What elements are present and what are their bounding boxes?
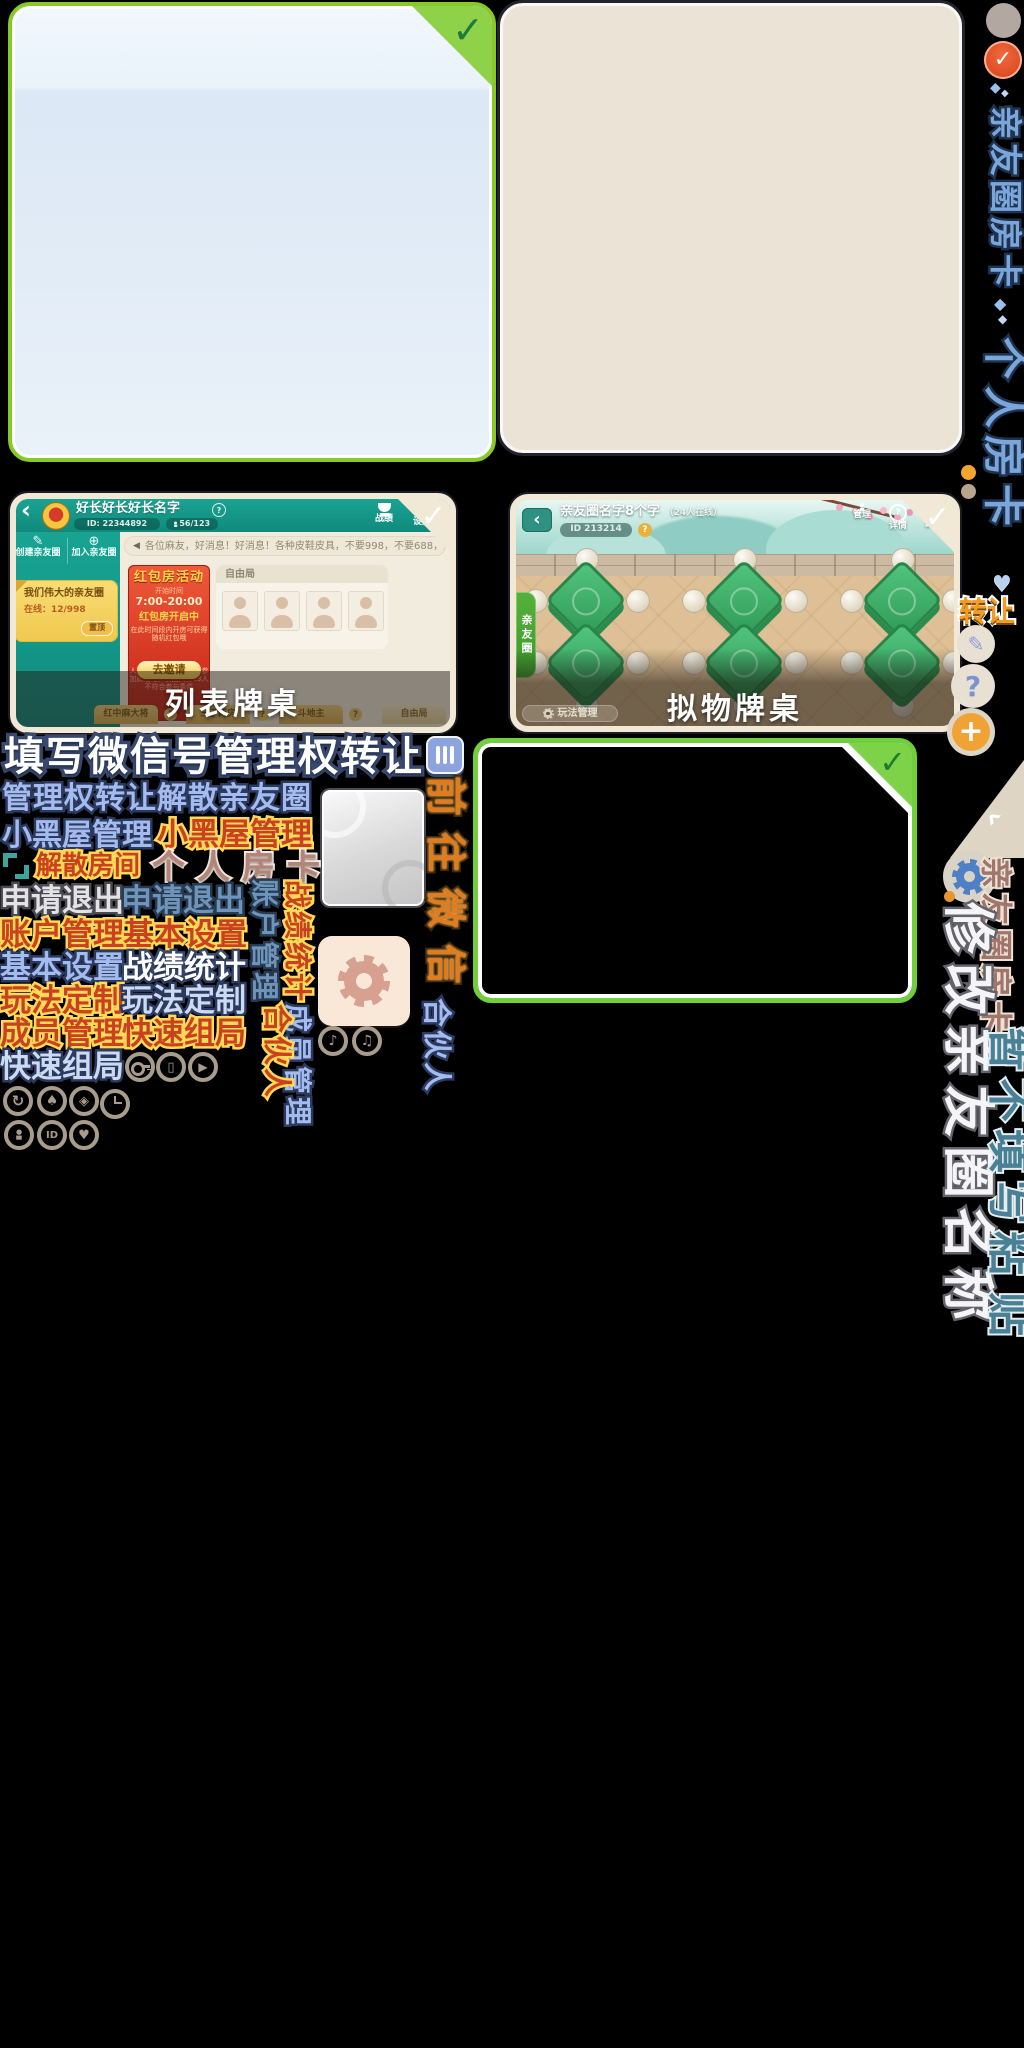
person-icon[interactable]: ●▄	[4, 1120, 34, 1150]
label-quick-blue[interactable]: 快速组局	[0, 1050, 124, 1084]
orange-dot	[961, 465, 976, 480]
question-glyph: ?	[895, 508, 900, 518]
tan-dot	[961, 484, 976, 499]
panel-beige[interactable]	[497, 0, 965, 456]
join-icon: ⊕	[68, 534, 120, 549]
label-custom-blue[interactable]: 玩法定制	[122, 984, 246, 1018]
help-button[interactable]: ?	[951, 664, 995, 708]
battle-button[interactable]: 战绩	[368, 501, 400, 525]
gear-icon	[338, 955, 390, 1007]
play-manage-button[interactable]: 玩法管理	[522, 705, 618, 722]
share-glyph: ↻	[12, 1092, 25, 1110]
label-member-red[interactable]: 成员管理	[0, 1017, 124, 1051]
list-id-pill: ID: 22344892	[74, 518, 160, 530]
play-icon[interactable]: ▶	[188, 1052, 218, 1082]
avatar-placeholder-circle[interactable]	[986, 3, 1021, 38]
label-stats-white[interactable]: 战绩统计	[122, 951, 246, 985]
tab-help-icon[interactable]: ?	[452, 708, 456, 721]
check-icon: ✓	[925, 500, 950, 535]
list-caption: 列表牌桌	[16, 679, 450, 723]
label-partner-blue[interactable]: 合伙人	[420, 998, 452, 1092]
check-icon: ✓	[421, 499, 446, 534]
label-custom-red[interactable]: 玩法定制	[0, 984, 124, 1018]
note-glyph: ♪	[329, 1033, 338, 1049]
label-fill-wechat-transfer[interactable]: 填写微信号管理权转让	[4, 735, 424, 779]
banner-status: 红包房开启中	[128, 612, 210, 623]
label-basic-blue[interactable]: 基本设置	[0, 951, 124, 985]
check-icon: ✓	[452, 8, 484, 52]
person-glyph: ●▄	[16, 1131, 22, 1139]
diamond-glyph: ◆	[998, 312, 1007, 326]
pin-button[interactable]: 置顶	[81, 621, 113, 636]
manage-label: 管理	[846, 511, 878, 521]
eye-icon[interactable]: ◈	[69, 1086, 99, 1116]
trophy-icon	[378, 503, 391, 512]
banner-title: 红包房活动	[128, 571, 210, 585]
back-icon: ‹	[533, 510, 540, 530]
label-personal-card-blue[interactable]: 个人房卡	[980, 337, 1024, 535]
question-icon: ?	[965, 670, 981, 703]
spade-glyph: ♠	[46, 1093, 59, 1109]
notification-dot	[944, 891, 955, 902]
room-manage-button[interactable]: ●▄ 管理	[846, 504, 878, 520]
screenshot-list-tables[interactable]: ‹ 好长好长好长名字 ? ID: 22344892 ●▄ 56/123 战绩 设…	[10, 493, 456, 733]
confirm-check-button[interactable]: ✓	[984, 41, 1022, 79]
settings-card-sprite[interactable]	[318, 936, 410, 1026]
list-title: 好长好长好长名字	[76, 502, 180, 516]
panel-blue-selected[interactable]: ✓	[8, 2, 496, 462]
diamond-glyph: ◆	[990, 80, 1001, 96]
create-label: 创建亲友圈	[10, 549, 66, 559]
list-header: ‹ 好长好长好长名字 ? ID: 22344892 ●▄ 56/123 战绩 设…	[16, 499, 450, 532]
label-transfer[interactable]: 转让	[959, 597, 1015, 628]
bar	[436, 746, 440, 764]
label-skip-fill[interactable]: 暂不填写粘	[984, 1027, 1024, 1293]
heart-icon[interactable]: ♥	[69, 1120, 99, 1150]
banner-desc-2: 随机红包哦	[128, 635, 210, 643]
circle-badge-icon	[42, 502, 70, 530]
plus-glyph: +	[958, 717, 983, 747]
check-icon: ✓	[994, 48, 1012, 72]
pencil-icon: ✎	[968, 632, 985, 656]
label-apply-quit-blue[interactable]: 申请退出	[121, 884, 245, 918]
play-manage-label: 玩法管理	[558, 708, 598, 719]
create-circle-button[interactable]: ✎ 创建亲友圈	[10, 534, 66, 559]
heart-diamond-icon: ♥	[992, 572, 1012, 597]
chevron-icon: ‹	[976, 799, 1012, 835]
join-circle-button[interactable]: ⊕ 加入亲友圈	[68, 534, 120, 559]
panel-green-selected[interactable]: ✓	[473, 738, 917, 1003]
spade-icon[interactable]: ♠	[37, 1086, 67, 1116]
create-icon: ✎	[10, 534, 66, 549]
gray-card-sprite[interactable]	[320, 788, 426, 908]
person-body: ▄	[16, 1135, 21, 1139]
join-label: 加入亲友圈	[68, 549, 120, 559]
bar	[443, 746, 447, 764]
label-dissolve-room[interactable]: 解散房间	[36, 852, 140, 881]
label-account-red[interactable]: 账户管理	[0, 918, 124, 952]
list-members: 56/123	[179, 520, 210, 529]
label-quick-red[interactable]: 快速组局	[122, 1017, 246, 1051]
avatar[interactable]	[264, 591, 300, 631]
card-icon[interactable]: ▯	[156, 1052, 186, 1082]
room-online-count: （24人在线）	[665, 508, 723, 518]
message-icon	[450, 503, 456, 517]
banner-time: 7:00-20:00	[128, 596, 210, 608]
edit-button[interactable]: ✎	[957, 625, 995, 663]
add-button[interactable]: +	[947, 708, 995, 756]
sprite-atlas: ✓ ‹ 好长好长好长名字 ? ID: 22344892 ●▄ 56/123 战绩	[0, 0, 1024, 2048]
blossom-icon	[836, 504, 843, 511]
member-body: ▄	[174, 524, 177, 526]
free-mode-header: 自由局	[216, 565, 388, 583]
bar	[450, 746, 454, 764]
room-title-text: 亲友圈名字8个字	[560, 504, 660, 519]
label-basic-red[interactable]: 基本设置	[123, 918, 247, 952]
room-title: 亲友圈名字8个字 （24人在线）	[560, 505, 722, 519]
label-apply-quit-white[interactable]: 申请退出	[0, 884, 124, 918]
my-circle-name: 我们伟大的亲友圈	[24, 588, 104, 599]
note-glyph: ♫	[361, 1033, 374, 1049]
id-icon[interactable]: ID	[37, 1120, 67, 1150]
label-paste[interactable]: 贴	[984, 1292, 1024, 1348]
play-glyph: ▶	[198, 1060, 207, 1074]
free-mode-body	[216, 583, 388, 649]
swirl-decoration	[320, 788, 366, 838]
card-glyph: ▯	[167, 1060, 174, 1075]
label-circle-card-blue[interactable]: 亲友圈房卡	[987, 106, 1023, 290]
label-transfer-dissolve[interactable]: 管理权转让解散亲友圈	[2, 782, 312, 815]
avatar[interactable]	[348, 591, 384, 631]
gear-icon	[543, 708, 554, 719]
pin-label: 置顶	[89, 624, 105, 633]
key-glyph	[131, 1062, 149, 1072]
swirl-decoration	[382, 860, 426, 908]
diamond-cluster-icon: ◆ ◆	[990, 80, 1016, 106]
my-circle-card[interactable]: 我们伟大的亲友圈 在线：12/998 置顶	[14, 580, 118, 642]
label-account-rotated[interactable]: 账户管理	[248, 879, 279, 1005]
plus-icon: +	[952, 713, 990, 751]
avatar[interactable]	[222, 591, 258, 631]
label-stats-rotated[interactable]: 战绩统计	[281, 880, 312, 1006]
sidebar-divider	[67, 538, 68, 564]
avatar[interactable]	[306, 591, 342, 631]
voice-muted-icon[interactable]: ♫	[352, 1026, 382, 1056]
list-view-icon[interactable]	[426, 736, 464, 774]
free-mode-label: 自由局	[225, 569, 255, 580]
screenshot-room-tables[interactable]: ‹ 亲友圈名字8个字 （24人在线） ID 213214 ? ●▄ 管理 ? 详…	[510, 494, 960, 732]
voice-icon[interactable]: ♪	[318, 1026, 348, 1056]
list-members-pill: ●▄ 56/123	[166, 518, 218, 530]
dissolve-room-icon[interactable]	[3, 853, 29, 879]
id-glyph: ID	[46, 1130, 58, 1141]
share-icon[interactable]: ↻	[3, 1086, 33, 1116]
diamond-glyph: ◆	[1001, 88, 1009, 99]
clock-icon[interactable]	[100, 1089, 130, 1119]
key-icon[interactable]	[125, 1052, 155, 1082]
list-id: ID: 22344892	[87, 520, 147, 529]
speaker-icon: ◀	[133, 541, 140, 551]
title-help-icon[interactable]: ?	[212, 503, 226, 517]
double-diamond-icon: ◆ ◆	[992, 294, 1018, 336]
label-blackroom-blue[interactable]: 小黑屋管理	[2, 819, 152, 852]
label-goto-wechat[interactable]: 前往微信	[423, 776, 467, 1002]
member-icon: ●▄	[174, 522, 178, 526]
room-back-button[interactable]: ‹	[522, 508, 552, 532]
label-partner-orange[interactable]: 合伙人	[260, 1004, 292, 1098]
eye-glyph: ◈	[79, 1094, 89, 1109]
collapse-corner-button[interactable]: ‹	[950, 760, 1024, 858]
back-icon[interactable]: ‹	[21, 497, 31, 523]
battle-label: 战绩	[368, 515, 400, 525]
check-icon: ✓	[879, 743, 906, 781]
my-circle-online: 在线：12/998	[24, 606, 86, 616]
heart-glyph: ♥	[78, 1128, 90, 1143]
diamond-glyph: ◆	[994, 294, 1006, 313]
